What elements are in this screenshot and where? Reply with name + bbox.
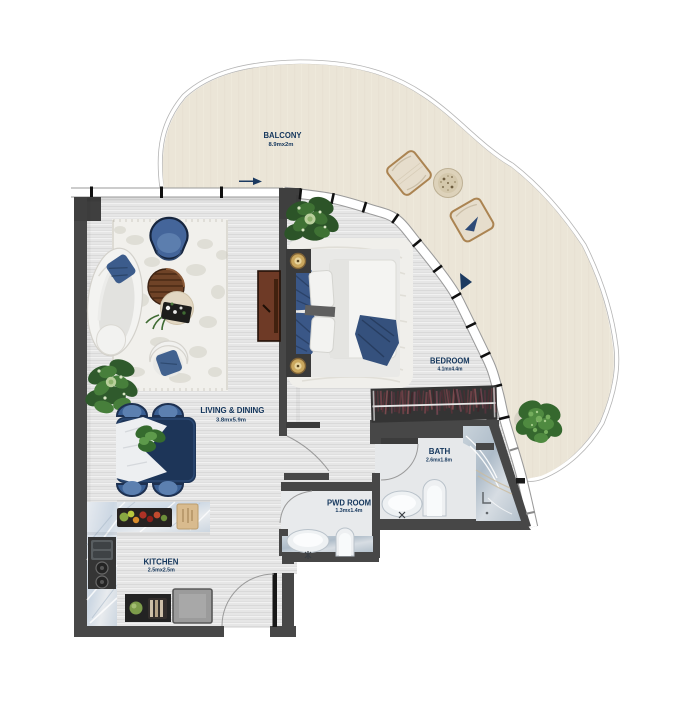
svg-text:BATH: BATH — [429, 446, 451, 456]
svg-text:8.9mx2m: 8.9mx2m — [269, 142, 294, 148]
svg-text:1.3mx1.4m: 1.3mx1.4m — [335, 508, 362, 514]
svg-text:4.1mx4.4m: 4.1mx4.4m — [438, 366, 463, 372]
svg-text:BEDROOM: BEDROOM — [430, 356, 470, 366]
svg-text:2.5mx2.5m: 2.5mx2.5m — [148, 568, 175, 574]
svg-text:KITCHEN: KITCHEN — [144, 556, 179, 566]
svg-text:3.8mx5.9m: 3.8mx5.9m — [216, 418, 246, 424]
svg-text:LIVING & DINING: LIVING & DINING — [200, 405, 264, 415]
svg-text:PWD ROOM: PWD ROOM — [327, 497, 371, 507]
svg-text:2.6mx1.8m: 2.6mx1.8m — [426, 457, 452, 463]
svg-text:BALCONY: BALCONY — [264, 130, 302, 140]
